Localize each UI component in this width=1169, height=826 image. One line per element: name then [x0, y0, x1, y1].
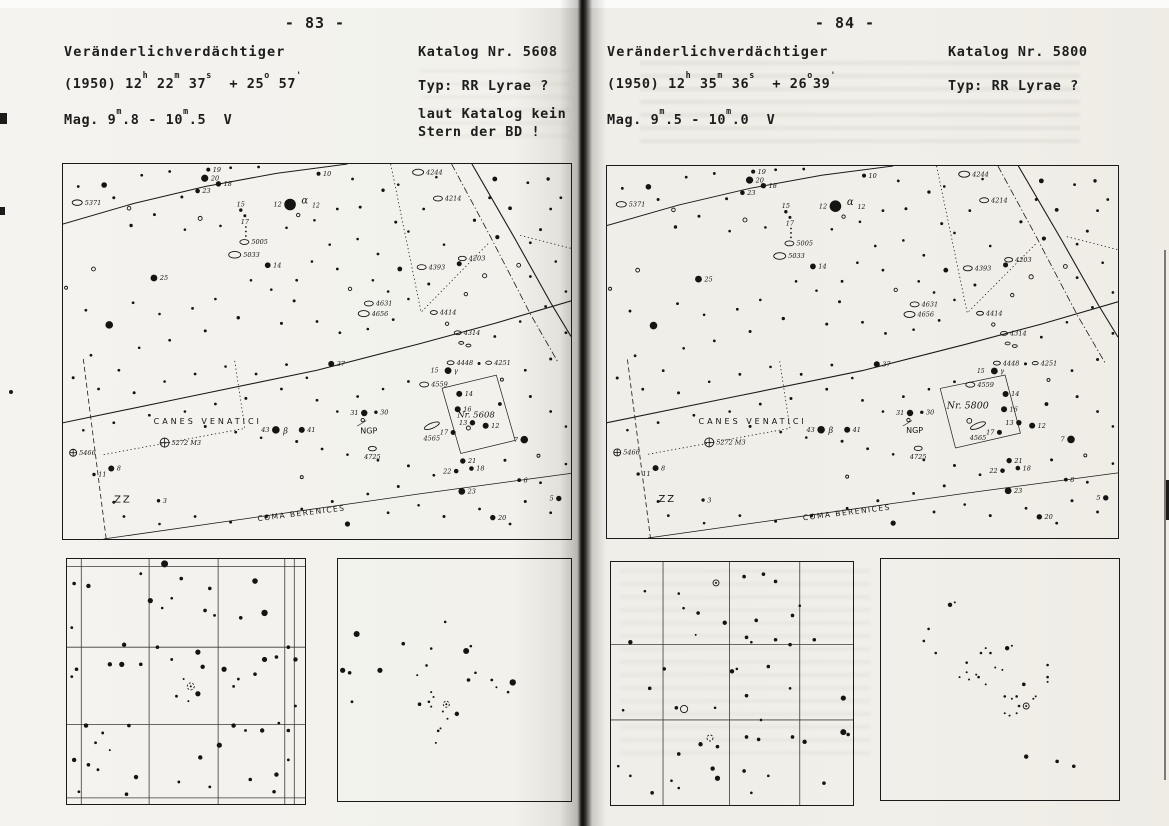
object-label: 21 — [467, 457, 476, 465]
star — [316, 320, 319, 323]
star — [774, 638, 778, 642]
star — [503, 459, 506, 462]
star — [980, 652, 983, 655]
galaxy-symbol — [368, 446, 376, 450]
object-label: 4314 — [1009, 330, 1027, 338]
chart-text: 15 — [977, 368, 985, 375]
star — [882, 269, 885, 272]
galaxy-symbol — [458, 256, 466, 260]
star — [195, 189, 200, 194]
star — [1064, 478, 1068, 482]
star — [348, 671, 352, 675]
star — [759, 403, 762, 406]
star — [1003, 262, 1008, 267]
star — [244, 397, 247, 400]
star — [981, 178, 984, 181]
star — [1076, 395, 1079, 398]
star — [549, 358, 552, 361]
star — [556, 496, 561, 501]
star — [138, 346, 141, 349]
star — [730, 669, 734, 673]
star — [682, 607, 685, 610]
star — [745, 735, 749, 739]
star — [442, 710, 444, 712]
star — [790, 237, 792, 239]
object-label: 5466 — [79, 449, 96, 457]
star — [86, 584, 90, 588]
star — [882, 209, 885, 212]
star — [108, 466, 114, 472]
object-label: 16 — [1010, 405, 1018, 413]
chart-svg — [67, 559, 305, 804]
star — [933, 511, 936, 514]
star — [884, 332, 887, 335]
object-label: 10 — [323, 170, 331, 178]
star — [943, 185, 946, 188]
star — [204, 329, 207, 332]
star — [997, 430, 1002, 435]
object-label: 25 — [703, 275, 712, 283]
star — [139, 572, 142, 575]
page-number-right: - 84 - — [785, 14, 905, 32]
star — [430, 647, 433, 650]
star — [200, 665, 204, 669]
star — [1035, 198, 1038, 201]
magnitude-right: Mag. 9m.5 - 10m.0 V — [607, 112, 775, 128]
star — [139, 663, 143, 667]
star — [184, 228, 187, 231]
star — [846, 733, 850, 737]
star — [140, 174, 143, 177]
star-open — [907, 418, 910, 421]
boundary-line — [937, 166, 1037, 313]
star — [1055, 760, 1059, 764]
mag-sup: m — [116, 106, 122, 116]
star — [262, 657, 267, 662]
star-open — [680, 705, 687, 712]
object-label: 12 — [273, 201, 281, 209]
star — [351, 700, 354, 703]
object-label: 5 — [1096, 494, 1100, 502]
star — [953, 299, 956, 302]
galaxy-symbol — [447, 361, 454, 365]
star — [336, 268, 339, 271]
chart-text: NGP — [360, 426, 377, 435]
galaxy-symbol — [364, 301, 373, 306]
chart-svg — [881, 559, 1119, 800]
star — [75, 667, 79, 671]
star — [725, 197, 728, 200]
star — [861, 321, 864, 324]
object-label: 43 — [260, 426, 269, 434]
star — [817, 426, 825, 434]
star — [985, 683, 987, 685]
star — [923, 640, 926, 643]
star — [97, 388, 100, 391]
star — [565, 331, 568, 334]
mag-text: Mag. 9 — [607, 112, 659, 128]
star — [1011, 698, 1013, 700]
star — [742, 575, 746, 579]
star — [87, 763, 91, 767]
star — [698, 742, 702, 746]
star — [467, 678, 471, 682]
star — [495, 686, 497, 688]
star — [989, 245, 992, 248]
star — [351, 178, 354, 181]
star — [157, 499, 160, 502]
star — [214, 298, 217, 301]
star — [245, 231, 247, 233]
galaxy-symbol — [963, 266, 972, 271]
star — [394, 221, 397, 224]
object-label: 4631 — [375, 300, 393, 308]
star — [1066, 321, 1069, 324]
object-label: 4251 — [1040, 359, 1058, 367]
star — [372, 279, 375, 282]
object-label: 7 — [514, 436, 519, 444]
star — [187, 700, 189, 702]
chart-text: β — [828, 426, 834, 435]
coord-sup: ' — [296, 70, 302, 80]
star — [838, 300, 841, 303]
star — [657, 198, 660, 201]
star — [991, 368, 998, 375]
coord-text: 22 — [148, 76, 174, 92]
star-open — [1063, 265, 1067, 269]
star — [953, 232, 956, 235]
star — [336, 410, 339, 413]
star — [338, 331, 341, 334]
star — [973, 284, 976, 287]
star — [728, 410, 731, 413]
chart-text: α — [847, 197, 854, 208]
star — [1022, 683, 1026, 687]
star — [84, 723, 88, 727]
type-right: Typ: RR Lyrae ? — [948, 78, 1079, 94]
star — [710, 766, 714, 770]
star — [782, 317, 785, 320]
star — [492, 177, 497, 182]
galaxy-symbol — [459, 342, 464, 345]
star — [917, 280, 920, 283]
star — [397, 183, 400, 186]
star — [1003, 695, 1006, 698]
star — [148, 414, 151, 417]
star — [435, 742, 437, 744]
star — [667, 514, 670, 517]
mag-text: Mag. 9 — [64, 112, 116, 128]
star — [437, 730, 440, 733]
star — [356, 395, 359, 398]
star — [168, 339, 171, 342]
star — [203, 609, 207, 613]
star — [841, 440, 844, 443]
star — [287, 759, 290, 762]
object-label: 11 — [98, 471, 106, 479]
star — [760, 719, 763, 722]
star-open — [198, 216, 202, 220]
star — [470, 420, 475, 425]
star — [622, 709, 625, 712]
star — [938, 319, 941, 322]
star — [856, 261, 859, 264]
star — [1040, 336, 1043, 339]
star — [1016, 466, 1021, 471]
star — [1096, 511, 1099, 514]
coord-text: (1950) 12 — [607, 76, 686, 92]
star — [101, 732, 104, 735]
coord-text: 57 — [270, 76, 296, 92]
star — [168, 170, 171, 173]
star — [313, 219, 316, 222]
star — [695, 276, 702, 283]
star — [989, 652, 992, 655]
star — [676, 302, 679, 305]
star — [767, 775, 770, 778]
object-label: 30 — [380, 408, 388, 416]
star — [802, 168, 805, 171]
star — [859, 221, 862, 224]
star — [294, 705, 297, 708]
galaxy-symbol — [240, 240, 249, 245]
star — [456, 391, 462, 397]
boundary-line — [1067, 237, 1118, 250]
star — [1103, 495, 1108, 500]
object-label: 12 — [819, 202, 827, 210]
coord-sup: s — [206, 70, 212, 80]
coord-sup: m — [717, 70, 723, 80]
coord-text: + 25 — [212, 76, 264, 92]
star — [565, 425, 568, 428]
star — [1112, 291, 1115, 294]
star — [407, 298, 410, 301]
star — [959, 676, 961, 678]
star — [761, 183, 766, 188]
star — [194, 515, 197, 518]
finder-panel-grid-5608 — [66, 558, 306, 805]
star — [1071, 499, 1074, 502]
star — [800, 373, 803, 376]
star — [361, 410, 367, 416]
star — [902, 239, 905, 242]
star — [565, 290, 568, 293]
star — [387, 290, 390, 293]
star — [922, 254, 925, 257]
star — [237, 678, 240, 681]
star — [257, 166, 260, 169]
star — [1001, 669, 1003, 671]
star — [968, 209, 971, 212]
star — [328, 243, 331, 246]
star — [791, 735, 795, 739]
star — [520, 436, 528, 444]
star-open — [1029, 275, 1033, 279]
star-open — [842, 215, 845, 218]
star — [1039, 178, 1044, 183]
star — [387, 511, 390, 514]
galaxy-symbol — [1005, 258, 1013, 262]
chart-text: Nr. 5800 — [946, 401, 989, 412]
mag-sup: m — [183, 106, 189, 116]
star — [397, 267, 402, 272]
object-label: 12 — [1038, 422, 1046, 430]
star — [177, 781, 180, 784]
object-label: 4203 — [468, 255, 486, 263]
coord-text: 35 — [691, 76, 717, 92]
star — [759, 299, 762, 302]
star — [221, 667, 226, 672]
star — [340, 668, 345, 673]
star — [789, 687, 792, 690]
star — [948, 603, 952, 607]
star — [629, 310, 632, 313]
star — [1096, 209, 1099, 212]
object-label: 17 — [986, 429, 995, 437]
galaxy-symbol — [430, 311, 437, 315]
object-label: 17 — [241, 218, 250, 226]
star — [907, 410, 913, 416]
star — [953, 464, 956, 467]
star — [474, 671, 477, 674]
star — [427, 283, 430, 286]
star — [133, 391, 136, 394]
object-label: 22 — [988, 467, 997, 475]
star — [927, 190, 930, 193]
star — [495, 235, 499, 239]
star-open — [1011, 293, 1014, 296]
object-label: 20 — [755, 176, 764, 184]
object-label: 5371 — [85, 199, 102, 207]
star — [650, 322, 658, 330]
object-label: 4393 — [428, 263, 446, 271]
object-label: 4656 — [917, 311, 935, 319]
coordinates-right: (1950) 12h 35m 36s + 26o39' — [607, 76, 836, 92]
star — [539, 481, 542, 484]
star — [892, 453, 895, 456]
star — [194, 373, 197, 376]
star — [716, 745, 720, 749]
star — [109, 749, 111, 751]
star — [97, 768, 100, 771]
star — [306, 376, 309, 379]
star — [790, 228, 792, 230]
object-label: 5005 — [251, 238, 268, 246]
star — [311, 260, 314, 263]
object-label: 17 — [786, 219, 795, 227]
star — [876, 499, 879, 502]
star — [272, 790, 276, 794]
star — [1055, 208, 1059, 212]
star — [451, 430, 456, 435]
galaxy-symbol — [785, 241, 794, 246]
star — [374, 411, 377, 414]
star — [662, 667, 666, 671]
galaxy-symbol — [966, 382, 975, 387]
star — [1045, 402, 1049, 406]
object-label: 22 — [442, 467, 451, 475]
star — [1024, 362, 1027, 365]
star-open — [672, 208, 676, 212]
star — [1000, 468, 1005, 473]
star — [519, 320, 522, 323]
star — [112, 196, 115, 199]
galaxy-symbol — [1005, 342, 1010, 345]
star — [1047, 681, 1049, 683]
star — [861, 399, 864, 402]
star-open — [348, 287, 351, 290]
star — [201, 175, 208, 182]
object-label: 4244 — [425, 168, 443, 176]
catalog-number-left: Katalog Nr. 5608 — [418, 44, 558, 60]
object-label: 4448 — [1002, 359, 1020, 367]
star — [1072, 764, 1076, 768]
star — [764, 226, 767, 229]
star — [407, 230, 410, 233]
star — [943, 268, 948, 273]
star — [789, 397, 792, 400]
star — [184, 410, 187, 413]
star — [105, 321, 113, 329]
star — [934, 652, 937, 655]
star-open — [894, 288, 897, 291]
star — [989, 514, 992, 517]
chart-svg: 1920182310121517537150055033142542444214… — [607, 166, 1118, 538]
star — [696, 611, 700, 615]
star — [161, 607, 164, 610]
star — [336, 208, 339, 211]
star — [455, 712, 459, 716]
object-label: 8 — [117, 465, 121, 473]
star — [440, 727, 442, 729]
galaxy-symbol — [980, 198, 989, 203]
star-open — [466, 426, 470, 430]
star — [616, 377, 619, 380]
star — [125, 792, 129, 796]
star — [977, 676, 980, 679]
star — [815, 289, 818, 292]
star — [416, 674, 418, 676]
object-label: 41 — [306, 426, 315, 434]
star — [443, 243, 446, 246]
star — [418, 702, 422, 706]
star — [117, 369, 120, 372]
star — [445, 367, 452, 374]
star — [685, 176, 688, 179]
star — [1015, 695, 1018, 698]
star-open — [992, 323, 995, 326]
star — [840, 729, 846, 735]
star — [366, 493, 369, 496]
star — [392, 318, 395, 321]
star — [648, 687, 652, 691]
magnitude-left: Mag. 9m.8 - 10m.5 V — [64, 112, 232, 128]
star — [381, 189, 384, 192]
object-label: 18 — [1023, 464, 1031, 472]
mag-text: .5 - 10 — [665, 112, 726, 128]
star — [447, 718, 449, 720]
star — [1019, 220, 1022, 223]
star — [129, 224, 132, 227]
star — [377, 668, 382, 673]
object-label: 37 — [337, 360, 346, 368]
star — [650, 791, 654, 795]
star — [430, 691, 432, 693]
object-label: 5466 — [623, 449, 640, 457]
star-open — [300, 476, 303, 479]
star — [158, 313, 161, 316]
galaxy-symbol — [959, 171, 970, 177]
